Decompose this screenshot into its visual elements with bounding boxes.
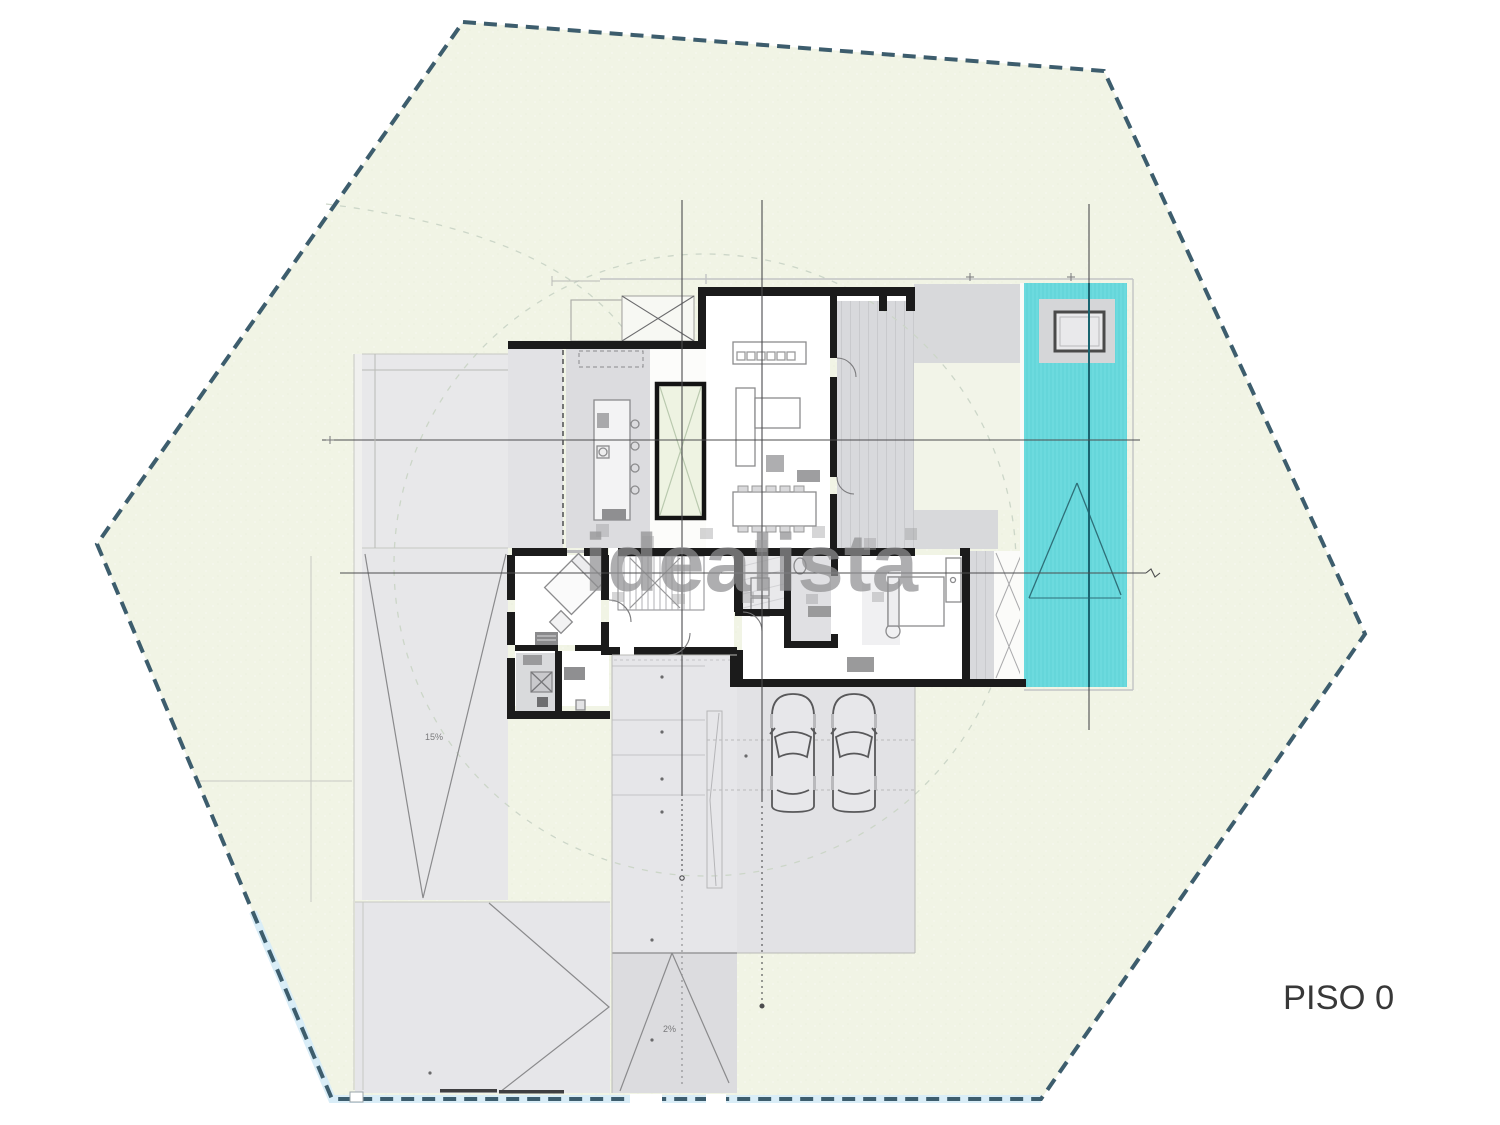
- svg-text:15%: 15%: [425, 732, 443, 742]
- svg-text:2%: 2%: [663, 1024, 676, 1034]
- svg-text:PISO 0: PISO 0: [1283, 979, 1394, 1017]
